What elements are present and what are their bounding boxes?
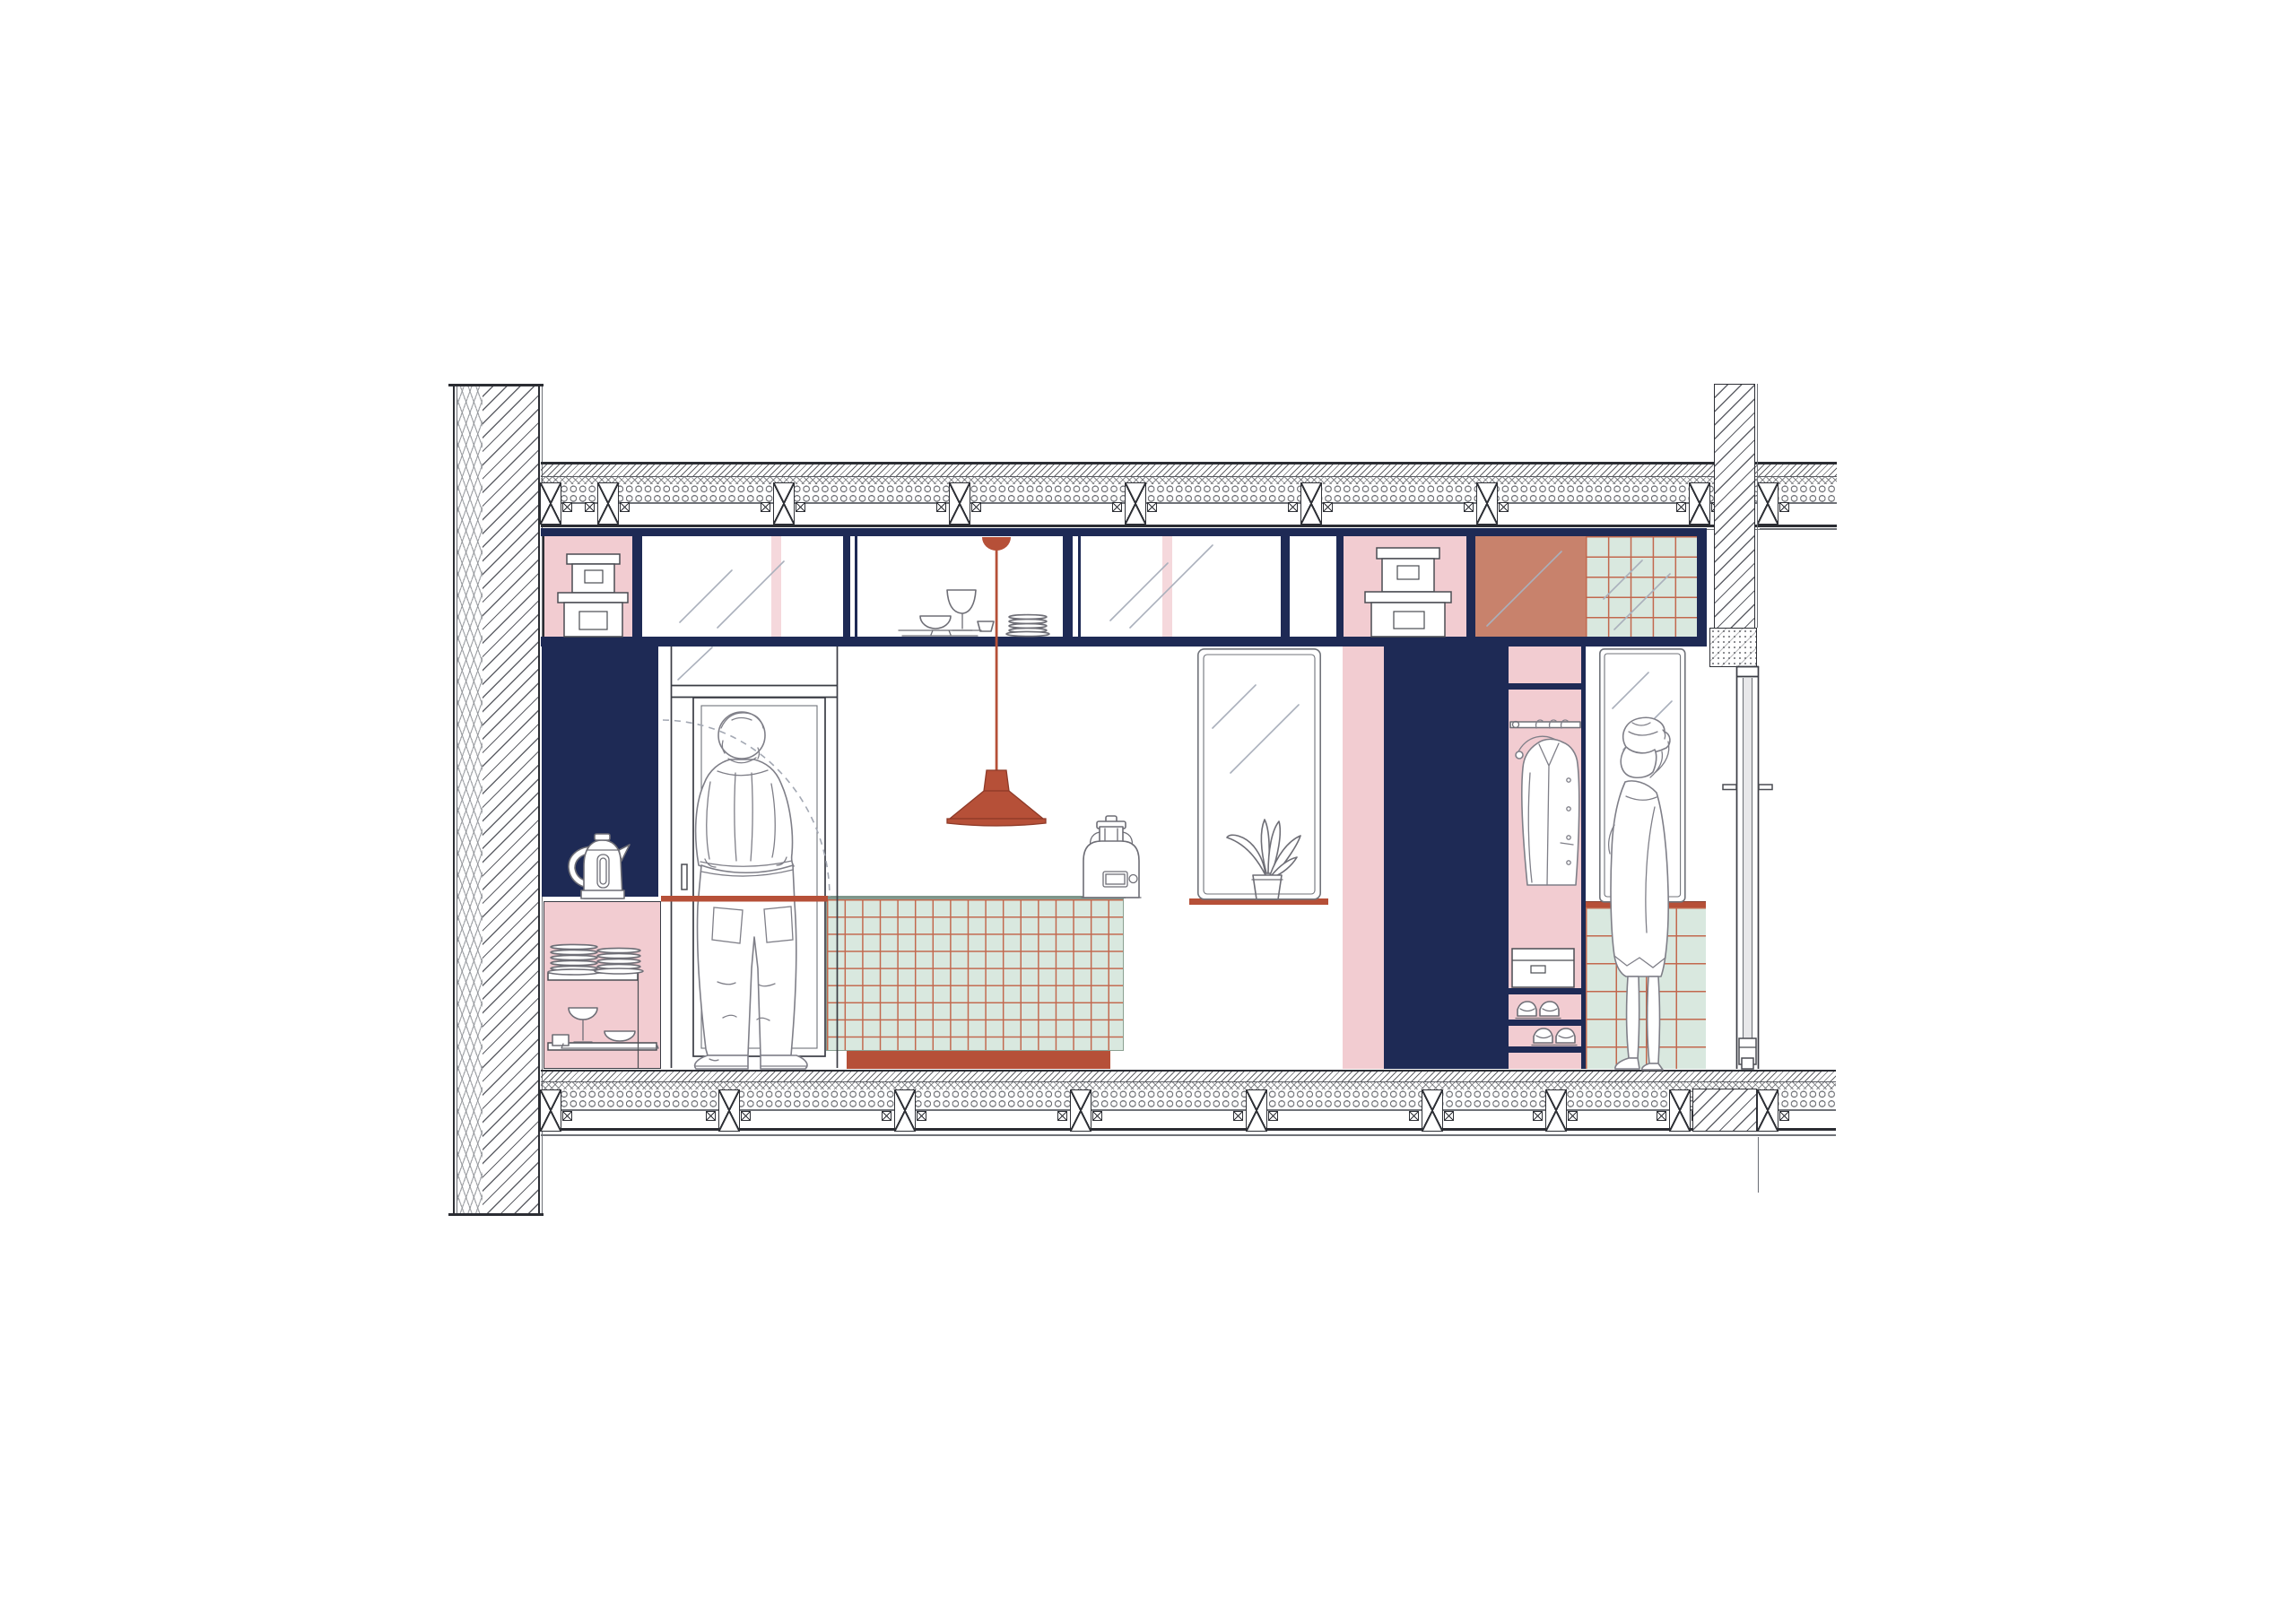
entry-door (1723, 666, 1772, 1193)
plate-stack (1006, 615, 1049, 637)
line-art-overlay (0, 0, 2296, 1623)
drawer-box (1512, 949, 1574, 987)
architectural-section-drawing (0, 0, 2296, 1623)
storage-boxes-right (1365, 548, 1451, 637)
glass-reflections (680, 545, 1672, 773)
kettle (569, 834, 630, 898)
hanging-rail (1510, 722, 1580, 728)
plate-stacks (548, 944, 643, 975)
wardrobe-items (1510, 720, 1580, 1046)
man-figure (695, 712, 807, 1069)
slippers (1516, 1002, 1577, 1046)
woman-figure (1609, 717, 1670, 1070)
pendant-lamp (947, 537, 1046, 826)
storage-boxes-left (558, 554, 628, 637)
potted-plant (1227, 820, 1300, 899)
food-processor (1082, 816, 1141, 898)
counter-red-line (661, 896, 828, 902)
shelf-unit-items (548, 944, 658, 1068)
cabinet-tableware (899, 590, 1049, 637)
